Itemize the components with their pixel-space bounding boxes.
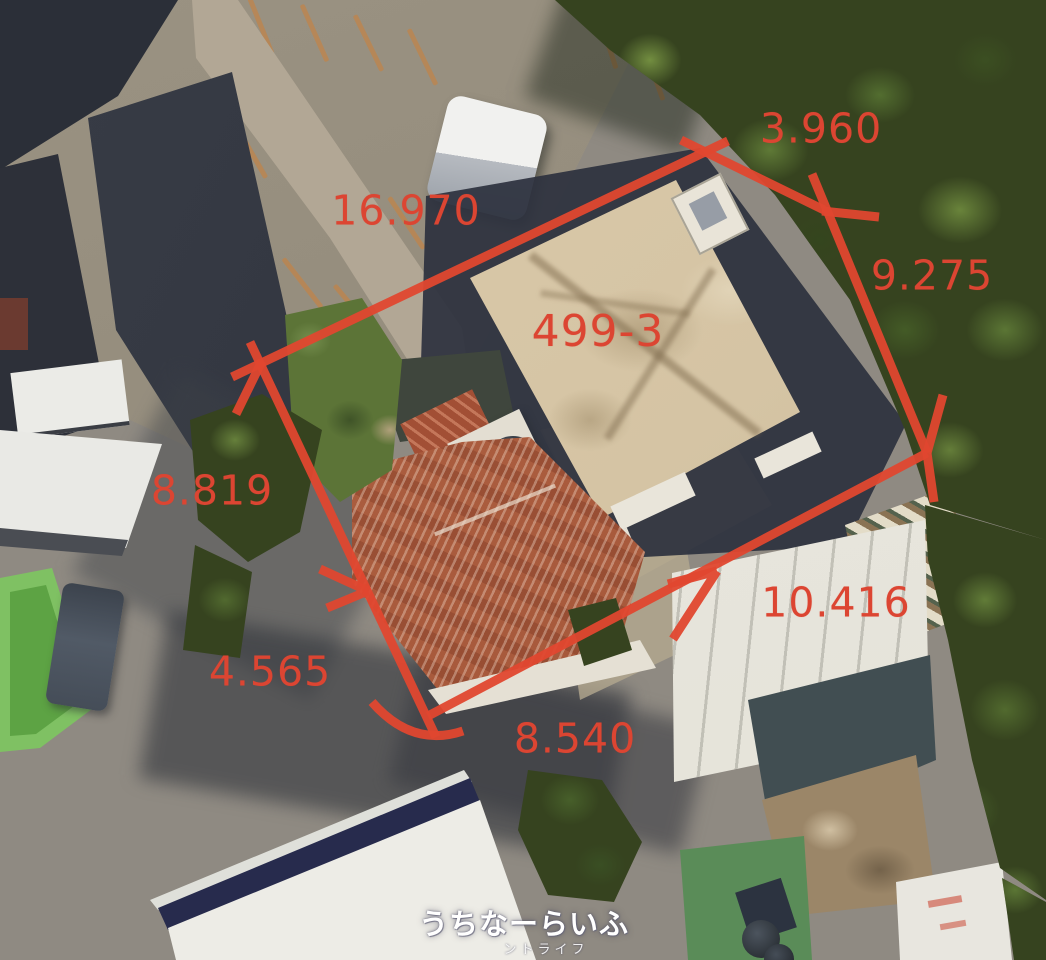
tick-above-D [927, 395, 943, 453]
watermark-logo: うちなーらいふ [419, 901, 629, 943]
aerial-photo: 16.970 3.960 9.275 10.416 8.540 4.565 8.… [0, 0, 1046, 960]
measurement-label-right-lower-edge: 10.416 [761, 583, 910, 624]
tick-below-D [927, 453, 934, 502]
measurement-label-left-upper-edge: 8.819 [151, 471, 273, 512]
measurement-label-top-left-edge: 16.970 [331, 191, 480, 232]
parcel-number-label: 499-3 [532, 310, 665, 354]
measurement-label-left-lower-edge: 4.565 [209, 652, 331, 693]
measurement-label-top-edge: 3.960 [760, 109, 882, 150]
measurement-label-bottom-edge: 8.540 [514, 719, 636, 760]
watermark-subtitle: ントライフ [503, 939, 588, 958]
chevron-bottom-edge [668, 571, 717, 639]
measurement-label-right-upper-edge: 9.275 [871, 256, 993, 297]
